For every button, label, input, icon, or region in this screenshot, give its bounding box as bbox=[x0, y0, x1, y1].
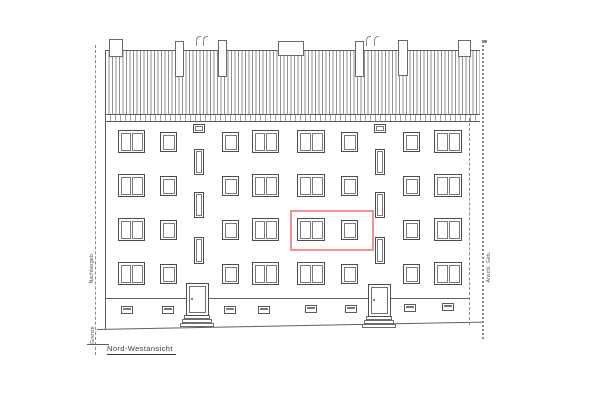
window-pane bbox=[266, 177, 277, 195]
window-single bbox=[160, 132, 177, 152]
window-double bbox=[434, 262, 462, 285]
window-pane bbox=[266, 133, 277, 151]
window-pane bbox=[163, 135, 175, 150]
stairwell-window-tall bbox=[194, 149, 204, 175]
basement-window bbox=[345, 305, 357, 313]
window-pane bbox=[347, 307, 355, 309]
drawing-page: Nachbargeb. Grenze Anschl. Geb. Nord-Wes… bbox=[0, 0, 600, 400]
chimney bbox=[355, 41, 364, 77]
roof-vent-pipe-icon bbox=[366, 36, 371, 46]
entrance-door-panel bbox=[371, 287, 388, 314]
window-pane bbox=[344, 267, 356, 282]
window-pane bbox=[377, 151, 383, 173]
window-pane bbox=[121, 133, 132, 151]
window-double bbox=[252, 262, 279, 285]
stairwell-window-tall bbox=[194, 192, 204, 218]
window-pane bbox=[437, 177, 448, 195]
door-steps bbox=[362, 324, 396, 328]
roof-hatching bbox=[105, 50, 480, 114]
basement-window bbox=[442, 303, 454, 311]
label-adjoining-building: Anschl. Geb. bbox=[486, 251, 492, 282]
window-single bbox=[222, 132, 239, 152]
window-pane bbox=[344, 135, 356, 150]
stairwell-window-small bbox=[193, 124, 205, 133]
window-pane bbox=[344, 179, 356, 194]
window-pane bbox=[164, 308, 172, 310]
eave-band bbox=[105, 114, 480, 122]
stairwell-window-tall bbox=[375, 192, 385, 218]
basement-window bbox=[162, 306, 174, 314]
window-double bbox=[434, 174, 462, 197]
window-double bbox=[118, 218, 145, 241]
chimney bbox=[175, 41, 184, 77]
window-pane bbox=[437, 133, 448, 151]
highlight-rectangle bbox=[290, 210, 374, 251]
window-double bbox=[118, 262, 145, 285]
window-pane bbox=[377, 194, 383, 216]
window-pane bbox=[163, 267, 175, 282]
building-right-hidden-edge bbox=[469, 118, 470, 325]
entrance-door bbox=[186, 283, 209, 316]
basement-window bbox=[305, 305, 317, 313]
window-pane bbox=[196, 151, 202, 173]
window-double bbox=[118, 174, 145, 197]
window-single bbox=[160, 220, 177, 240]
door-knob-icon bbox=[373, 299, 375, 301]
window-pane bbox=[163, 223, 175, 238]
stairwell-window-small bbox=[374, 124, 386, 133]
window-pane bbox=[225, 223, 237, 238]
window-single bbox=[341, 176, 358, 196]
window-double bbox=[434, 130, 462, 153]
entrance-door bbox=[368, 284, 391, 317]
window-pane bbox=[406, 223, 418, 238]
window-pane bbox=[132, 265, 143, 283]
window-pane bbox=[300, 177, 311, 195]
window-double bbox=[434, 218, 462, 241]
window-pane bbox=[255, 265, 266, 283]
window-double bbox=[118, 130, 145, 153]
chimney bbox=[398, 40, 408, 76]
label-neighbor-building: Nachbargeb. bbox=[89, 253, 95, 284]
window-pane bbox=[260, 308, 268, 310]
door-knob-icon bbox=[191, 298, 193, 300]
window-pane bbox=[312, 133, 323, 151]
window-double bbox=[252, 130, 279, 153]
stairwell-window-tall bbox=[375, 149, 385, 175]
window-pane bbox=[132, 133, 143, 151]
window-pane bbox=[196, 239, 202, 262]
window-pane bbox=[132, 221, 143, 239]
window-pane bbox=[376, 126, 384, 131]
window-pane bbox=[406, 306, 414, 308]
basement-window bbox=[258, 306, 270, 314]
chimney bbox=[109, 39, 123, 57]
window-pane bbox=[307, 307, 315, 309]
window-pane bbox=[312, 177, 323, 195]
window-pane bbox=[449, 221, 460, 239]
chimney bbox=[218, 40, 227, 77]
window-pane bbox=[300, 265, 311, 283]
window-pane bbox=[266, 221, 277, 239]
label-boundary: Grenze bbox=[90, 326, 96, 344]
basement-window bbox=[121, 306, 133, 314]
window-single bbox=[160, 264, 177, 284]
window-pane bbox=[449, 133, 460, 151]
window-single bbox=[403, 264, 420, 284]
right-boundary-line bbox=[482, 40, 484, 339]
chimney bbox=[458, 40, 471, 57]
left-boundary-tick bbox=[87, 344, 109, 345]
window-pane bbox=[437, 221, 448, 239]
window-pane bbox=[226, 308, 234, 310]
roof-vent-pipe-icon bbox=[196, 36, 201, 46]
window-pane bbox=[406, 135, 418, 150]
window-double bbox=[252, 218, 279, 241]
plinth-line bbox=[105, 298, 470, 299]
window-pane bbox=[312, 265, 323, 283]
stairwell-window-tall bbox=[375, 237, 385, 264]
chimney bbox=[278, 41, 304, 56]
window-pane bbox=[132, 177, 143, 195]
window-pane bbox=[255, 221, 266, 239]
window-single bbox=[222, 264, 239, 284]
window-pane bbox=[121, 265, 132, 283]
window-pane bbox=[437, 265, 448, 283]
window-double bbox=[297, 262, 325, 285]
window-single bbox=[160, 176, 177, 196]
left-boundary-line bbox=[95, 45, 96, 355]
window-single bbox=[403, 176, 420, 196]
window-single bbox=[222, 220, 239, 240]
window-pane bbox=[406, 179, 418, 194]
view-title: Nord-Westansicht bbox=[107, 344, 176, 355]
window-pane bbox=[121, 177, 132, 195]
window-pane bbox=[444, 305, 452, 307]
window-pane bbox=[300, 133, 311, 151]
window-pane bbox=[196, 194, 202, 216]
window-pane bbox=[255, 177, 266, 195]
window-single bbox=[222, 176, 239, 196]
window-pane bbox=[163, 179, 175, 194]
window-pane bbox=[266, 265, 277, 283]
window-pane bbox=[406, 267, 418, 282]
roof-vent-pipe-icon bbox=[374, 36, 379, 46]
stairwell-window-tall bbox=[194, 237, 204, 264]
window-single bbox=[341, 264, 358, 284]
entrance-door-panel bbox=[189, 286, 206, 313]
window-double bbox=[297, 130, 325, 153]
window-single bbox=[403, 220, 420, 240]
window-pane bbox=[449, 177, 460, 195]
window-single bbox=[341, 132, 358, 152]
roof-vent-pipe-icon bbox=[203, 36, 208, 46]
window-pane bbox=[121, 221, 132, 239]
window-pane bbox=[449, 265, 460, 283]
window-pane bbox=[255, 133, 266, 151]
window-pane bbox=[377, 239, 383, 262]
window-pane bbox=[225, 179, 237, 194]
window-double bbox=[297, 174, 325, 197]
building-left-edge bbox=[105, 50, 106, 329]
basement-window bbox=[404, 304, 416, 312]
door-steps bbox=[180, 323, 214, 327]
window-double bbox=[252, 174, 279, 197]
ground-line bbox=[97, 322, 483, 330]
window-single bbox=[403, 132, 420, 152]
window-pane bbox=[123, 308, 131, 310]
window-pane bbox=[225, 135, 237, 150]
basement-window bbox=[224, 306, 236, 314]
window-pane bbox=[195, 126, 203, 131]
window-pane bbox=[225, 267, 237, 282]
